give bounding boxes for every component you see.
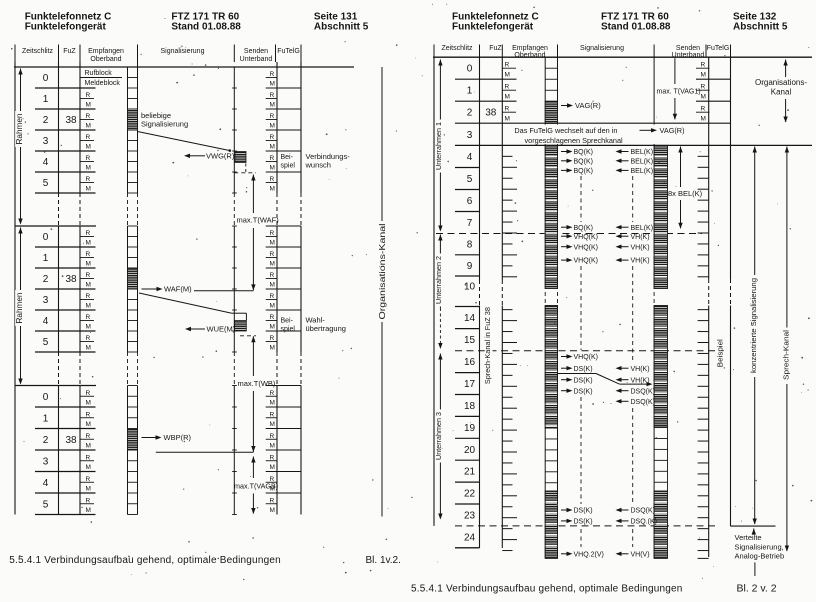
svg-text:WAF(M): WAF(M) bbox=[164, 285, 192, 294]
svg-text:1: 1 bbox=[43, 253, 49, 264]
svg-text:VH(V): VH(V) bbox=[631, 551, 650, 558]
svg-text:Empfangen: Empfangen bbox=[88, 48, 124, 55]
svg-text:R: R bbox=[270, 335, 275, 342]
svg-text:R: R bbox=[86, 497, 91, 504]
svg-text:max.T(VAGB): max.T(VAGB) bbox=[234, 482, 278, 491]
svg-text:BEL(K): BEL(K) bbox=[631, 168, 654, 175]
svg-text:Bl. 1v.2.: Bl. 1v.2. bbox=[366, 555, 401, 566]
svg-text:R: R bbox=[86, 433, 91, 440]
svg-text:Abschnitt 5: Abschnitt 5 bbox=[314, 22, 369, 33]
svg-text:VHQ.2(V): VHQ.2(V) bbox=[574, 551, 604, 558]
svg-text:DS(K): DS(K) bbox=[574, 388, 593, 395]
svg-text:Rufblock: Rufblock bbox=[85, 70, 113, 77]
svg-text:DS(K): DS(K) bbox=[574, 508, 593, 515]
svg-text:5.5.4.1 Verbindungsaufbau gehe: 5.5.4.1 Verbindungsaufbau gehend, optima… bbox=[9, 555, 281, 566]
svg-text:Funktelefongerät: Funktelefongerät bbox=[25, 22, 107, 33]
svg-text:R: R bbox=[505, 83, 510, 90]
svg-text:R: R bbox=[270, 293, 275, 300]
svg-text:M: M bbox=[86, 485, 91, 492]
svg-text:R: R bbox=[270, 71, 275, 78]
svg-text:R: R bbox=[86, 454, 91, 461]
svg-text:M: M bbox=[86, 399, 91, 406]
svg-text:4: 4 bbox=[467, 152, 473, 163]
svg-text:Funktelefongerät: Funktelefongerät bbox=[452, 22, 534, 33]
svg-text:R: R bbox=[270, 176, 275, 183]
svg-text:M: M bbox=[270, 144, 275, 151]
svg-text:R: R bbox=[701, 105, 706, 112]
svg-text:Organisations-Kanal: Organisations-Kanal bbox=[377, 223, 387, 319]
svg-text:R: R bbox=[86, 272, 91, 279]
svg-text:DSQ(K): DSQ(K) bbox=[631, 399, 656, 406]
svg-text:R: R bbox=[270, 454, 275, 461]
svg-text:BEL(K): BEL(K) bbox=[631, 149, 654, 156]
svg-text:VH(K): VH(K) bbox=[631, 366, 650, 373]
svg-text:5: 5 bbox=[43, 337, 49, 348]
svg-text:Unterrahmen 1: Unterrahmen 1 bbox=[436, 122, 443, 170]
svg-text:Rahmen: Rahmen bbox=[15, 114, 24, 145]
svg-text:M: M bbox=[270, 282, 275, 289]
svg-text:2: 2 bbox=[467, 108, 473, 119]
svg-text:FuTelG: FuTelG bbox=[707, 45, 730, 52]
svg-text:FuZ: FuZ bbox=[63, 48, 76, 55]
svg-text:Unterrahmen 2: Unterrahmen 2 bbox=[436, 256, 443, 304]
svg-text:R: R bbox=[270, 251, 275, 258]
svg-text:6: 6 bbox=[467, 196, 473, 207]
svg-text:Unterband: Unterband bbox=[240, 56, 273, 63]
svg-text:Signalisierung: Signalisierung bbox=[141, 120, 188, 129]
svg-text:3: 3 bbox=[467, 130, 473, 141]
svg-text:4: 4 bbox=[43, 316, 49, 327]
svg-text:VHQ(K): VHQ(K) bbox=[574, 244, 599, 251]
svg-text:0: 0 bbox=[43, 232, 49, 243]
svg-text:Organisations-: Organisations- bbox=[755, 78, 807, 87]
svg-text:M: M bbox=[86, 102, 91, 109]
svg-text:R: R bbox=[86, 230, 91, 237]
svg-text:8: 8 bbox=[467, 240, 473, 251]
svg-text:BEL(K): BEL(K) bbox=[631, 158, 654, 165]
svg-text:M: M bbox=[86, 442, 91, 449]
svg-text:18: 18 bbox=[464, 401, 476, 412]
svg-text:M: M bbox=[270, 261, 275, 268]
svg-text:1: 1 bbox=[43, 94, 49, 105]
svg-text:R: R bbox=[86, 293, 91, 300]
svg-text:R: R bbox=[86, 314, 91, 321]
svg-text:M: M bbox=[270, 123, 275, 130]
svg-text:DSQ(K): DSQ(K) bbox=[631, 388, 656, 395]
svg-text:Oberband: Oberband bbox=[514, 52, 545, 59]
svg-text:19: 19 bbox=[464, 423, 476, 434]
svg-text:1: 1 bbox=[43, 413, 49, 424]
svg-text:10: 10 bbox=[464, 282, 476, 293]
svg-text:15: 15 bbox=[464, 335, 476, 346]
svg-text:7: 7 bbox=[467, 218, 473, 229]
svg-text:R: R bbox=[270, 155, 275, 162]
svg-text:R: R bbox=[505, 105, 510, 112]
svg-text:3: 3 bbox=[43, 136, 49, 147]
svg-text:38: 38 bbox=[65, 115, 77, 126]
svg-text:M: M bbox=[86, 507, 91, 514]
svg-text:38: 38 bbox=[65, 274, 77, 285]
svg-text:5: 5 bbox=[43, 499, 49, 510]
svg-text:M: M bbox=[86, 421, 91, 428]
svg-text:3: 3 bbox=[43, 295, 49, 306]
svg-text:2: 2 bbox=[43, 115, 49, 126]
svg-text:BQ(K): BQ(K) bbox=[574, 149, 593, 156]
svg-text:M: M bbox=[86, 144, 91, 151]
svg-text:24: 24 bbox=[464, 532, 476, 543]
svg-text:2: 2 bbox=[43, 274, 49, 285]
svg-text:R: R bbox=[270, 272, 275, 279]
svg-text:VH(K): VH(K) bbox=[631, 244, 650, 251]
svg-text:DSQ(K): DSQ(K) bbox=[631, 508, 656, 515]
svg-text:BEL(K): BEL(K) bbox=[631, 225, 654, 232]
svg-text:R: R bbox=[86, 476, 91, 483]
svg-text:M: M bbox=[86, 123, 91, 130]
svg-text:Kanal: Kanal bbox=[771, 88, 792, 97]
svg-text:38: 38 bbox=[485, 108, 497, 119]
svg-text:23: 23 bbox=[464, 510, 476, 521]
svg-text:0: 0 bbox=[43, 73, 49, 84]
svg-text:Unterrahmen 3: Unterrahmen 3 bbox=[436, 412, 443, 460]
svg-text:38: 38 bbox=[65, 435, 77, 446]
svg-text:M: M bbox=[270, 81, 275, 88]
svg-text:M: M bbox=[270, 240, 275, 247]
svg-text:Sprech-Kanal: Sprech-Kanal bbox=[783, 329, 790, 380]
svg-text:R: R bbox=[270, 497, 275, 504]
svg-text:R: R bbox=[505, 61, 510, 68]
svg-text:R: R bbox=[270, 314, 275, 321]
svg-text:4: 4 bbox=[43, 478, 49, 489]
svg-text:M: M bbox=[270, 324, 275, 331]
svg-text:M: M bbox=[270, 464, 275, 471]
svg-text:DSQ.(K): DSQ.(K) bbox=[631, 519, 657, 526]
svg-text:spiel: spiel bbox=[281, 326, 296, 333]
svg-text:BQ(K): BQ(K) bbox=[574, 168, 593, 175]
svg-text:vorgeschlagenen Sprechkanal: vorgeschlagenen Sprechkanal bbox=[525, 136, 624, 145]
svg-text:FuTelG: FuTelG bbox=[277, 48, 300, 55]
svg-text:Zeitschlitz: Zeitschlitz bbox=[441, 45, 473, 52]
svg-text:16: 16 bbox=[464, 357, 476, 368]
svg-text:R: R bbox=[86, 134, 91, 141]
svg-text:M: M bbox=[505, 116, 510, 123]
svg-text:VHQ(K): VHQ(K) bbox=[574, 258, 599, 265]
svg-text:VAG(R): VAG(R) bbox=[660, 126, 685, 135]
svg-text:max.T(WB): max.T(WB) bbox=[238, 379, 276, 388]
svg-text:VH(K): VH(K) bbox=[631, 258, 650, 265]
svg-text:R: R bbox=[270, 134, 275, 141]
svg-text:M: M bbox=[270, 421, 275, 428]
svg-text:M: M bbox=[270, 102, 275, 109]
svg-text:M: M bbox=[86, 261, 91, 268]
svg-text:Stand 01.08.88: Stand 01.08.88 bbox=[171, 22, 241, 33]
svg-text:2: 2 bbox=[43, 435, 49, 446]
svg-text:Bei-: Bei- bbox=[281, 154, 294, 161]
svg-text:VHQ(K): VHQ(K) bbox=[574, 234, 599, 241]
svg-text:M: M bbox=[86, 240, 91, 247]
svg-text:VAG(R): VAG(R) bbox=[575, 101, 601, 110]
svg-text:17: 17 bbox=[464, 379, 476, 390]
svg-text:4: 4 bbox=[43, 157, 49, 168]
svg-text:8x BEL(K): 8x BEL(K) bbox=[668, 189, 703, 198]
svg-text:M: M bbox=[86, 282, 91, 289]
svg-text:spiel: spiel bbox=[281, 163, 296, 170]
svg-text:R: R bbox=[86, 176, 91, 183]
svg-text:0: 0 bbox=[43, 392, 49, 403]
svg-text:WBP(R): WBP(R) bbox=[164, 433, 192, 442]
svg-text:R: R bbox=[270, 113, 275, 120]
svg-text:R: R bbox=[270, 92, 275, 99]
svg-text:FuZ: FuZ bbox=[489, 45, 502, 52]
svg-text:VHQ(K): VHQ(K) bbox=[574, 354, 599, 361]
svg-text:Zeitschlitz: Zeitschlitz bbox=[22, 48, 54, 55]
svg-text:R: R bbox=[86, 411, 91, 418]
svg-text:M: M bbox=[270, 165, 275, 172]
svg-text:Meldeblock: Meldeblock bbox=[85, 80, 121, 87]
svg-text:BQ(K): BQ(K) bbox=[574, 225, 593, 232]
svg-text:M: M bbox=[270, 303, 275, 310]
svg-text:max.T(WAF): max.T(WAF) bbox=[237, 216, 280, 225]
svg-text:M: M bbox=[86, 345, 91, 352]
svg-text:Beispiel: Beispiel bbox=[717, 339, 724, 368]
svg-text:Rahmen: Rahmen bbox=[15, 293, 24, 324]
svg-text:Signalisierung: Signalisierung bbox=[580, 45, 624, 52]
svg-text:22: 22 bbox=[464, 489, 476, 500]
svg-text:R: R bbox=[86, 390, 91, 397]
svg-text:R: R bbox=[86, 113, 91, 120]
svg-text:Unterband: Unterband bbox=[672, 52, 705, 59]
svg-text:DS(K): DS(K) bbox=[574, 366, 593, 373]
svg-text:R: R bbox=[701, 83, 706, 90]
svg-text:Signalisierung: Signalisierung bbox=[161, 48, 205, 55]
svg-text:R: R bbox=[86, 335, 91, 342]
svg-text:3: 3 bbox=[43, 456, 49, 467]
svg-text:1: 1 bbox=[467, 86, 473, 97]
svg-text:max. T(VAG1): max. T(VAG1) bbox=[657, 89, 701, 96]
svg-text:M: M bbox=[701, 72, 706, 79]
svg-text:übertragung: übertragung bbox=[306, 324, 346, 333]
svg-text:14: 14 bbox=[464, 313, 476, 324]
svg-text:Das FuTelG wechselt auf den in: Das FuTelG wechselt auf den in bbox=[514, 126, 617, 135]
svg-text:konzentrierte Signalisierung: konzentrierte Signalisierung bbox=[751, 278, 758, 373]
svg-text:WUE(M): WUE(M) bbox=[207, 325, 236, 334]
svg-text:5.5.4.1 Verbindungsaufbau gehe: 5.5.4.1 Verbindungsaufbau gehend, optima… bbox=[411, 584, 683, 595]
svg-text:9: 9 bbox=[467, 261, 473, 272]
svg-text:M: M bbox=[270, 399, 275, 406]
svg-text:R: R bbox=[270, 390, 275, 397]
svg-text:VWG(R): VWG(R) bbox=[206, 152, 235, 161]
svg-text:M: M bbox=[505, 72, 510, 79]
svg-text:DS(K): DS(K) bbox=[574, 519, 593, 526]
svg-text:Sprech-Kanal in FuZ 38: Sprech-Kanal in FuZ 38 bbox=[485, 307, 492, 384]
svg-text:M: M bbox=[701, 94, 706, 101]
svg-text:R: R bbox=[86, 251, 91, 258]
svg-text:Verteilte: Verteilte bbox=[735, 533, 762, 542]
svg-text:5: 5 bbox=[43, 178, 49, 189]
svg-text:R: R bbox=[86, 92, 91, 99]
svg-text:21: 21 bbox=[464, 467, 476, 478]
svg-text:M: M bbox=[86, 464, 91, 471]
svg-text:Bl. 2 v. 2: Bl. 2 v. 2 bbox=[737, 583, 777, 595]
svg-text:M: M bbox=[86, 186, 91, 193]
svg-text:R: R bbox=[270, 433, 275, 440]
svg-text:Abschnitt 5: Abschnitt 5 bbox=[733, 22, 788, 33]
svg-text:M: M bbox=[86, 303, 91, 310]
svg-text:M: M bbox=[701, 116, 706, 123]
svg-text:M: M bbox=[270, 442, 275, 449]
svg-text:Oberband: Oberband bbox=[90, 56, 121, 63]
svg-text:M: M bbox=[270, 186, 275, 193]
svg-text:M: M bbox=[270, 345, 275, 352]
svg-text:M: M bbox=[86, 324, 91, 331]
svg-text:wunsch: wunsch bbox=[305, 161, 331, 170]
svg-text:20: 20 bbox=[464, 445, 476, 456]
svg-text:Bei-: Bei- bbox=[281, 318, 294, 325]
svg-text:Signalisierung,: Signalisierung, bbox=[735, 542, 784, 551]
svg-text:DS(K): DS(K) bbox=[574, 377, 593, 384]
svg-text:R: R bbox=[86, 155, 91, 162]
svg-text:M: M bbox=[505, 94, 510, 101]
svg-text:0: 0 bbox=[467, 64, 473, 75]
svg-text:R: R bbox=[701, 61, 706, 68]
svg-text:R: R bbox=[270, 411, 275, 418]
svg-text:Stand 01.08.88: Stand 01.08.88 bbox=[601, 22, 671, 33]
svg-text:M: M bbox=[86, 165, 91, 172]
svg-text:M: M bbox=[270, 507, 275, 514]
svg-text:Senden: Senden bbox=[244, 48, 268, 55]
svg-text:Analog-Betrieb: Analog-Betrieb bbox=[735, 552, 785, 561]
svg-text:R: R bbox=[270, 230, 275, 237]
svg-text:5: 5 bbox=[467, 174, 473, 185]
svg-text:BQ(K): BQ(K) bbox=[574, 158, 593, 165]
svg-text:VH(K): VH(K) bbox=[631, 234, 650, 241]
